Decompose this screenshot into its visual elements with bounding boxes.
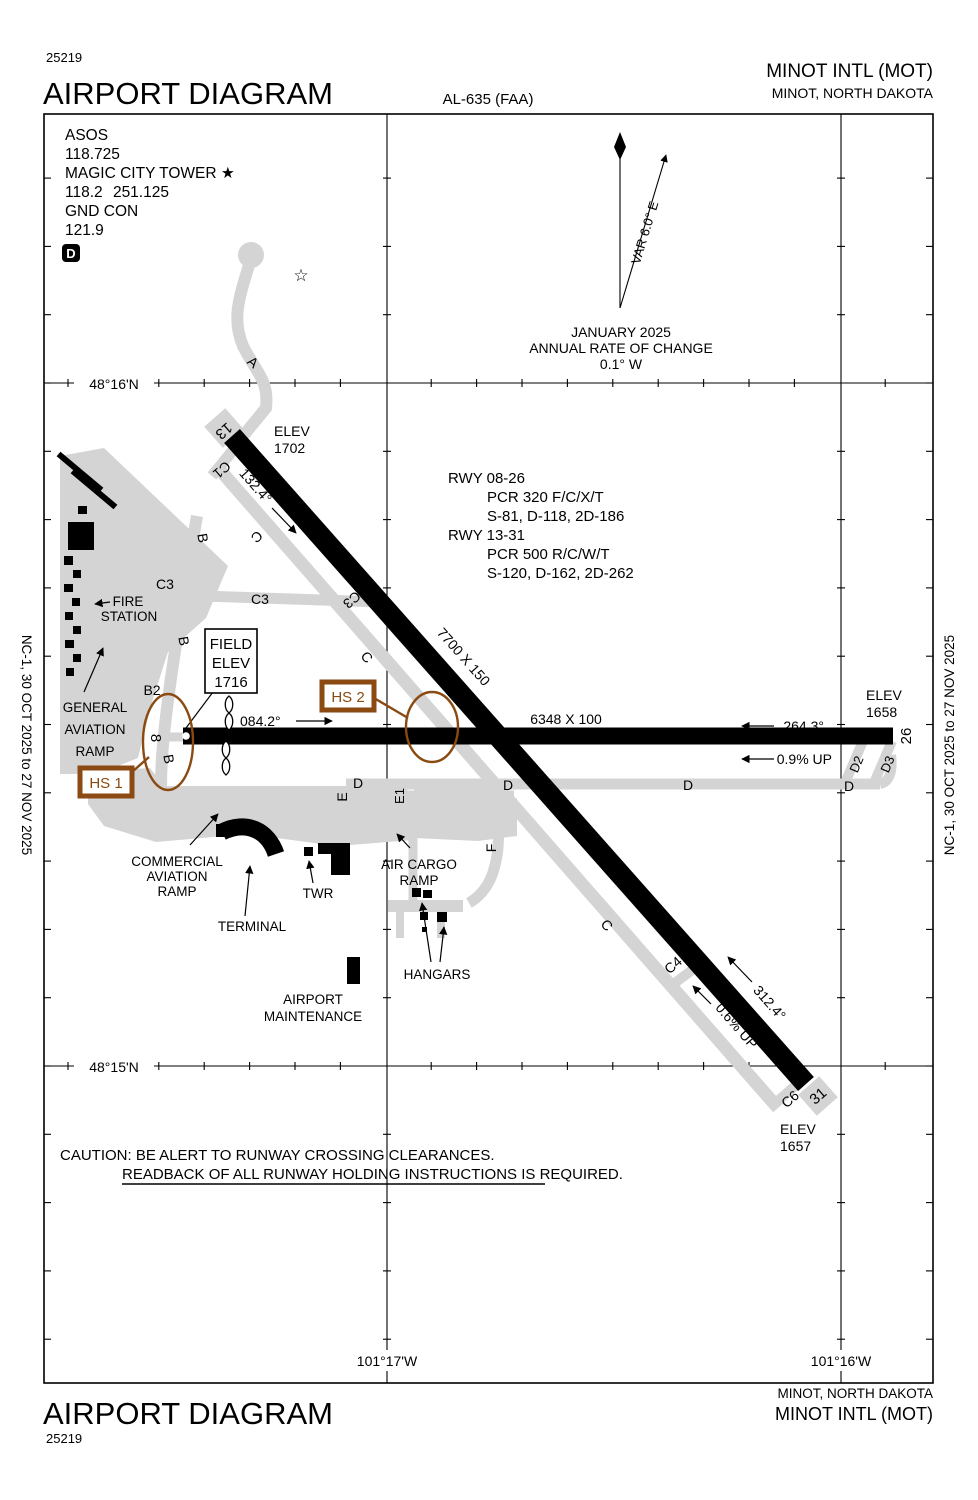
ga-ramp-label3: RAMP: [75, 744, 114, 759]
asos-frequency: 118.725: [65, 146, 120, 163]
graticule-lines: [44, 114, 933, 1383]
fire-station-label1: FIRE: [113, 594, 144, 609]
north-arrow-group: VAR 6.0° E JANUARY 2025 ANNUAL RATE OF C…: [529, 132, 713, 372]
ramp-building: [66, 668, 74, 676]
elev-rwy26-value: 1658: [866, 704, 897, 720]
fire-station-label2: STATION: [101, 609, 158, 624]
rwy08-26-dimensions: 6348 X 100: [530, 711, 602, 727]
airport-city-bottom: MINOT, NORTH DAKOTA: [777, 1386, 933, 1401]
annual-rate-label: ANNUAL RATE OF CHANGE: [529, 340, 713, 356]
taxiway-label-b: B: [194, 532, 211, 544]
field-elev-word2: ELEV: [212, 655, 250, 672]
lon-label-east: 101°16'W: [811, 1353, 872, 1369]
taxiway-label-b2: B2: [143, 682, 160, 698]
taxiway-label-e: E: [334, 792, 350, 801]
airport-name-bottom: MINOT INTL (MOT): [775, 1404, 933, 1424]
taxiway-label-c: C: [248, 528, 266, 547]
ramp-building: [64, 584, 73, 592]
ga-ramp-label1: GENERAL: [63, 700, 128, 715]
chart-edition-bottom: 25219: [46, 1431, 82, 1446]
tower-building: [304, 847, 313, 856]
elev-rwy26-label: ELEV: [866, 687, 902, 703]
rwy26-slope: 0.9% UP: [777, 751, 832, 767]
commercial-ramp-label3: RAMP: [157, 884, 196, 899]
caution-line2: READBACK OF ALL RUNWAY HOLDING INSTRUCTI…: [122, 1166, 623, 1183]
rwy-info-line: PCR 500 R/C/W/T: [487, 546, 610, 563]
terminal-west-wing: [216, 824, 230, 837]
cargo-building: [331, 843, 350, 875]
ramp-building: [73, 626, 81, 634]
air-cargo-label1: AIR CARGO: [381, 857, 457, 872]
hangars-label: HANGARS: [404, 967, 471, 982]
taxiway-label-d: D: [503, 777, 513, 793]
map-border: [44, 114, 933, 1383]
ga-building: [78, 506, 87, 514]
lat-label-north: 48°16'N: [89, 376, 139, 392]
asos-label: ASOS: [65, 127, 108, 144]
commercial-ramp-label2: AVIATION: [146, 869, 207, 884]
comm-frequencies: ASOS 118.725 MAGIC CITY TOWER ★ 118.2 25…: [62, 127, 309, 285]
lon-label-west: 101°17'W: [357, 1353, 418, 1369]
chart-edition-top: 25219: [46, 50, 82, 65]
rwy-info-line: PCR 320 F/C/X/T: [487, 489, 604, 506]
lat-label-south: 48°15'N: [89, 1059, 139, 1075]
rwy08-heading: 084.2°: [240, 713, 281, 729]
rwy-info-line: RWY 13-31: [448, 527, 525, 544]
hangar-building: [423, 890, 432, 898]
taxiway-label-d: D: [844, 778, 854, 794]
runway8-threshold-dot: [182, 732, 190, 740]
airport-name-top: MINOT INTL (MOT): [766, 61, 933, 82]
ramp-building: [73, 654, 81, 662]
ground-control-label: GND CON: [65, 203, 138, 220]
airport-maintenance-building: [347, 957, 360, 984]
cargo-building-annex: [318, 843, 331, 854]
maintenance-label2: MAINTENANCE: [264, 1009, 362, 1024]
maintenance-label1: AIRPORT: [283, 992, 343, 1007]
hangar-building: [437, 912, 447, 922]
rwy-info-line: S-120, D-162, 2D-262: [487, 565, 634, 582]
air-cargo-label2: RAMP: [399, 873, 438, 888]
elev-rwy31-label: ELEV: [780, 1121, 816, 1137]
taxiway-label-f: F: [483, 844, 499, 853]
chart-id: AL-635 (FAA): [443, 91, 534, 108]
elev-rwy13-value: 1702: [274, 440, 305, 456]
taxiway-label-d: D: [683, 777, 693, 793]
runway-info-block: RWY 08-26 PCR 320 F/C/X/T S-81, D-118, 2…: [448, 470, 634, 582]
airport-diagram-page: 25219 AIRPORT DIAGRAM AL-635 (FAA) MINOT…: [0, 0, 978, 1500]
airport-city-top: MINOT, NORTH DAKOTA: [772, 85, 934, 101]
hot-spot-2-leader: [374, 698, 408, 718]
airport-beacon-icon: ☆: [293, 266, 308, 285]
commercial-ramp-label1: COMMERCIAL: [131, 854, 223, 869]
hot-spot-2-label: HS 2: [331, 689, 364, 706]
tower-arrow: [309, 861, 313, 883]
annual-rate-value: 0.1° W: [600, 356, 643, 372]
ga-main-building: [68, 522, 94, 550]
field-elev-word1: FIELD: [210, 636, 253, 653]
ramp-building: [65, 612, 73, 620]
taxiway-label-c3: C3: [251, 591, 269, 607]
taxiway-label-b: B: [175, 635, 192, 647]
variation-label: VAR 6.0° E: [628, 199, 661, 266]
elev-rwy13-label: ELEV: [274, 423, 310, 439]
ramp-building: [65, 640, 74, 648]
runway-end-number-8: 8: [147, 734, 164, 742]
taxiway-label-c3: C3: [156, 576, 174, 592]
taxiway-a: [237, 262, 266, 436]
fire-station-building: [64, 556, 73, 565]
hot-spot-1-label: HS 1: [89, 775, 122, 792]
terminal-arrow: [245, 866, 250, 916]
runway-end-number-26: 26: [898, 728, 915, 745]
hot-spot-d-badge-letter: D: [66, 246, 75, 261]
right-margin-effective-dates: NC-1, 30 OCT 2025 to 27 NOV 2025: [942, 635, 957, 855]
tower-frequencies: 118.2 251.125: [65, 184, 169, 201]
rwy-info-line: S-81, D-118, 2D-186: [487, 508, 624, 525]
caution-note: CAUTION: BE ALERT TO RUNWAY CROSSING CLE…: [60, 1147, 623, 1184]
airport-diagram-canvas: 25219 AIRPORT DIAGRAM AL-635 (FAA) MINOT…: [0, 0, 978, 1500]
terminal-building: [222, 827, 276, 854]
ground-control-frequency: 121.9: [65, 222, 104, 239]
field-elev-value: 1716: [214, 674, 247, 691]
rwy-info-line: RWY 08-26: [448, 470, 525, 487]
elev-rwy31-value: 1657: [780, 1138, 811, 1154]
terminal-label: TERMINAL: [218, 919, 287, 934]
variation-date: JANUARY 2025: [571, 324, 671, 340]
taxiway-label-e1: E1: [392, 788, 407, 804]
page-title-top: AIRPORT DIAGRAM: [43, 76, 333, 111]
ramp-building: [72, 598, 80, 606]
page-title-bottom: AIRPORT DIAGRAM: [43, 1396, 333, 1431]
ga-ramp-label2: AVIATION: [64, 722, 125, 737]
caution-line1: CAUTION: BE ALERT TO RUNWAY CROSSING CLE…: [60, 1147, 495, 1164]
tower-label-map: TWR: [303, 886, 334, 901]
tower-label: MAGIC CITY TOWER ★: [65, 165, 235, 182]
true-north-arrowhead-icon: [614, 132, 626, 160]
ramp-building: [73, 570, 81, 578]
rwy31-heading-arrow: [728, 957, 752, 982]
taxiway-label-d: D: [353, 775, 363, 791]
left-margin-effective-dates: NC-1, 30 OCT 2025 to 27 NOV 2025: [19, 635, 34, 855]
rwy26-heading: 264.3°: [783, 718, 824, 734]
taxiway-label-b: B: [160, 753, 177, 765]
hangar-building: [412, 888, 421, 897]
